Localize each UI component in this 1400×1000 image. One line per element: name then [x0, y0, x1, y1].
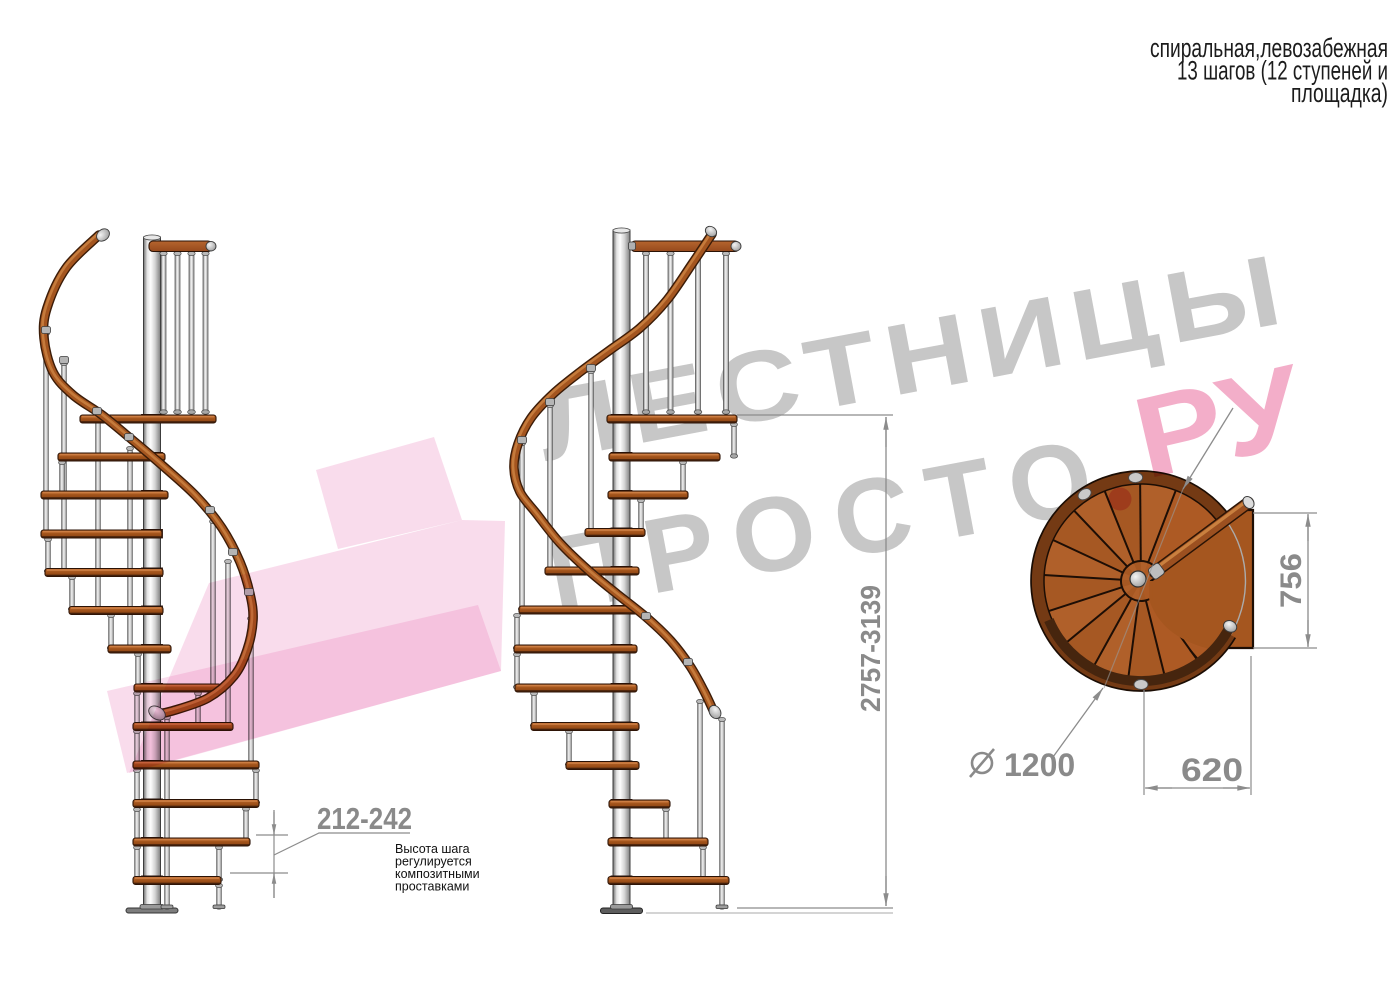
svg-text:756: 756: [1275, 553, 1308, 608]
svg-text:212-242: 212-242: [317, 801, 412, 836]
svg-text:площадка): площадка): [1291, 78, 1388, 108]
svg-text:2757-3139: 2757-3139: [855, 585, 886, 712]
svg-text:1200: 1200: [1004, 747, 1075, 783]
svg-text:проставками: проставками: [395, 880, 469, 894]
svg-text:620: 620: [1181, 752, 1243, 788]
